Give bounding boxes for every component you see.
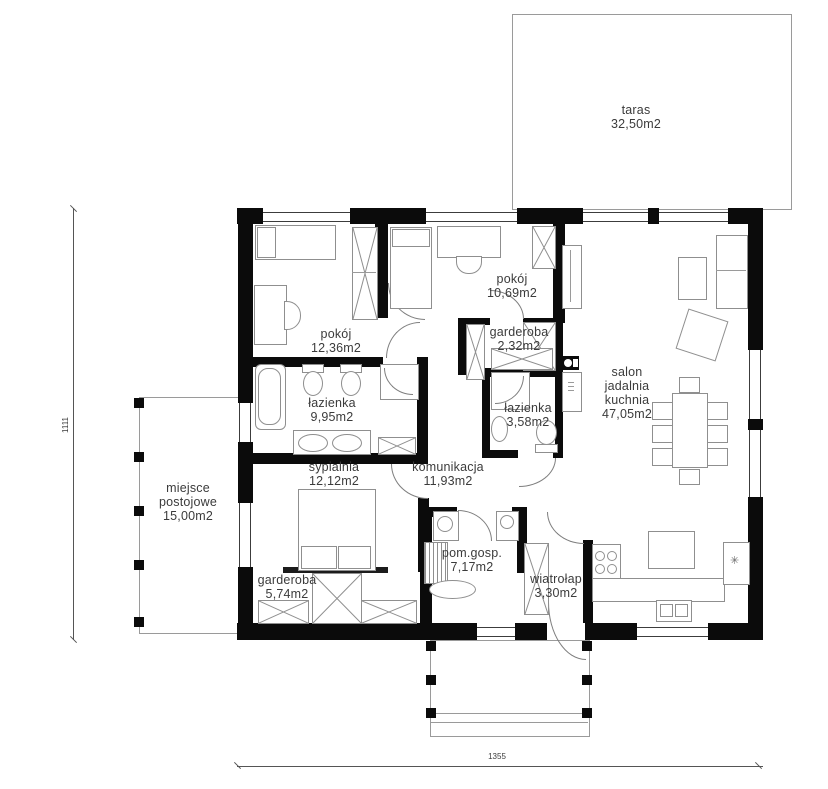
room-name: garderoba	[490, 325, 549, 339]
sink-cabinet-door	[675, 604, 688, 617]
room-area: 12,36m2	[311, 341, 361, 355]
wall	[517, 208, 583, 224]
room-label-salon: salon jadalnia kuchnia 47,05m2	[592, 365, 662, 421]
window	[637, 627, 708, 637]
room-label-sypialnia: sypialnia 12,12m2	[309, 460, 359, 488]
tv-shelf-line	[570, 250, 571, 302]
room-label-garderoba-1: garderoba 2,32m2	[490, 325, 549, 353]
door-arc-wiatrolap	[547, 512, 584, 544]
dining-table	[672, 393, 708, 468]
burner	[607, 551, 617, 561]
dining-chair	[652, 448, 673, 466]
dimension-label-left: 1111	[62, 417, 70, 433]
floor-plan-canvas: ✳ 1111 1355 taras 32,50m2 pokój 12,36m2 …	[0, 0, 828, 789]
parking-post	[134, 398, 144, 408]
washing-machine-door	[437, 516, 453, 532]
porch-post	[582, 708, 592, 718]
dining-chair	[707, 425, 728, 443]
wall	[515, 623, 547, 640]
window	[426, 212, 517, 222]
sink-cabinet-door	[660, 604, 673, 617]
dining-chair	[707, 448, 728, 466]
oven-display	[573, 359, 578, 367]
dimension-label-bottom: 1355	[488, 753, 506, 761]
room-label-pokoj-1: pokój 12,36m2	[311, 327, 361, 355]
boiler-dial	[500, 515, 514, 529]
bathtub-inner	[258, 368, 281, 425]
room-area: 5,74m2	[258, 587, 317, 601]
wall	[350, 208, 426, 224]
pillow	[257, 227, 276, 258]
terrace-door	[583, 212, 648, 222]
room-label-pokoj-2: pokój 10,69m2	[487, 272, 537, 300]
window	[659, 212, 728, 222]
wall	[648, 208, 659, 224]
window	[239, 503, 251, 567]
window	[263, 212, 350, 222]
pillow	[338, 546, 371, 569]
sink-basin	[298, 434, 328, 452]
room-name: salon jadalnia kuchnia	[592, 365, 662, 407]
side-table	[676, 309, 729, 362]
utility-object	[429, 580, 476, 599]
dining-chair	[652, 425, 673, 443]
window	[477, 627, 515, 637]
room-area: 32,50m2	[611, 117, 661, 131]
room-name: pokój	[311, 327, 361, 341]
dining-chair	[679, 469, 700, 485]
wardrobe	[532, 226, 556, 269]
room-name: wiatrołap	[530, 572, 582, 586]
wall	[748, 419, 763, 430]
door-arc-lazienka2	[519, 458, 556, 487]
sofa-cushion-line	[716, 270, 746, 271]
wall	[237, 623, 477, 640]
burner	[595, 551, 605, 561]
armchair	[678, 257, 707, 300]
room-name: pokój	[487, 272, 537, 286]
door-arc-pomgosp	[458, 510, 492, 541]
room-name: łazienka	[308, 396, 355, 410]
wall	[238, 442, 253, 503]
room-area: 7,17m2	[442, 560, 502, 574]
room-name: garderoba	[258, 573, 317, 587]
sink-basin	[332, 434, 362, 452]
parking-post	[134, 452, 144, 462]
room-label-taras: taras 32,50m2	[611, 103, 661, 131]
room-name: pom.gosp.	[442, 546, 502, 560]
room-name: miejsce postojowe	[148, 481, 228, 509]
room-name: komunikacja	[412, 460, 484, 474]
chair	[456, 256, 482, 274]
room-area: 3,30m2	[530, 586, 582, 600]
wall	[748, 497, 763, 640]
room-label-komunikacja: komunikacja 11,93m2	[412, 460, 484, 488]
wall	[585, 623, 637, 640]
cabinet-handle	[568, 382, 574, 383]
room-area: 47,05m2	[592, 407, 662, 421]
pillow	[301, 546, 337, 569]
dimension-line-bottom	[237, 766, 763, 767]
desk	[437, 226, 501, 258]
wall	[238, 208, 253, 403]
cabinet-handle	[568, 390, 574, 391]
porch-post	[426, 675, 436, 685]
dimension-line-left	[73, 208, 74, 640]
wardrobe	[258, 600, 309, 624]
parking-post	[134, 617, 144, 627]
kitchen-counter	[592, 578, 725, 602]
toilet-bowl	[303, 371, 323, 396]
wardrobe	[352, 227, 378, 320]
room-label-miejsce-postojowe: miejsce postojowe 15,00m2	[148, 481, 228, 523]
room-area: 3,58m2	[504, 415, 551, 429]
wardrobe	[378, 437, 416, 455]
window	[749, 350, 761, 419]
pillow	[392, 229, 430, 247]
burner	[607, 564, 617, 574]
porch-post	[426, 641, 436, 651]
room-label-lazienka-1: łazienka 9,95m2	[308, 396, 355, 424]
window	[749, 430, 761, 497]
chair	[284, 301, 301, 330]
kitchen-island	[648, 531, 695, 569]
wardrobe	[312, 573, 362, 624]
room-label-lazienka-2: łazienka 3,58m2	[504, 401, 551, 429]
wardrobe	[361, 600, 417, 624]
toilet-tank	[535, 444, 558, 453]
sofa	[716, 235, 748, 309]
room-area: 10,69m2	[487, 286, 537, 300]
cabinet-handle	[568, 386, 574, 387]
room-label-wiatrolap: wiatrołap 3,30m2	[530, 572, 582, 600]
parking-post	[134, 506, 144, 516]
wardrobe	[466, 324, 485, 380]
dining-chair	[679, 377, 700, 393]
sink-symbol: ✳	[730, 557, 739, 565]
wall	[748, 208, 763, 350]
room-area: 12,12m2	[309, 474, 359, 488]
parking-post	[134, 560, 144, 570]
tv-shelf-unit	[562, 245, 582, 309]
room-name: taras	[611, 103, 661, 117]
porch-post	[582, 675, 592, 685]
room-label-garderoba-2: garderoba 5,74m2	[258, 573, 317, 601]
wall-lazienka2-west	[482, 368, 490, 458]
porch-step	[430, 713, 588, 714]
desk	[254, 285, 287, 345]
stove	[592, 544, 621, 580]
porch-post	[426, 708, 436, 718]
wall-garderoba1-west	[458, 318, 466, 375]
room-name: łazienka	[504, 401, 551, 415]
oven-knob	[564, 359, 572, 367]
room-area: 11,93m2	[412, 474, 484, 488]
kitchen-cabinet-column	[562, 372, 582, 412]
wardrobe-shelf-line	[352, 272, 376, 273]
porch-step	[430, 722, 588, 723]
room-name: sypialnia	[309, 460, 359, 474]
wall	[708, 623, 763, 640]
burner	[595, 564, 605, 574]
room-area: 9,95m2	[308, 410, 355, 424]
bidet-bowl	[341, 371, 361, 396]
window	[239, 403, 251, 442]
room-area: 2,32m2	[490, 339, 549, 353]
room-label-pom-gosp: pom.gosp. 7,17m2	[442, 546, 502, 574]
wall-lazienka2-bottom	[490, 450, 518, 458]
door-arc-lazienka1	[386, 322, 420, 358]
room-area: 15,00m2	[148, 509, 228, 523]
dining-chair	[707, 402, 728, 420]
